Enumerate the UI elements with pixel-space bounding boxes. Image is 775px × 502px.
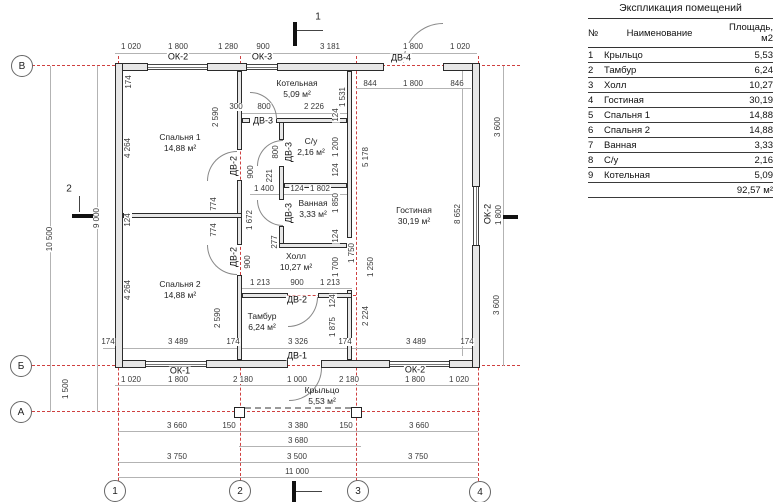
dimension-label: 1 800 xyxy=(404,376,426,384)
wall-segment xyxy=(347,71,352,238)
table-row: 3Холл10,27 xyxy=(588,78,773,93)
dimension-line xyxy=(118,477,478,478)
table-row: 2Тамбур6,24 xyxy=(588,63,773,78)
dimension-label: 4 264 xyxy=(124,137,132,159)
room-table-body: 1Крыльцо5,532Тамбур6,243Холл10,274Гостин… xyxy=(588,48,773,183)
dimension-label: 1 400 xyxy=(253,185,275,193)
wall-segment xyxy=(207,63,247,71)
room-label: Холл10,27 м² xyxy=(280,251,312,273)
dimension-label: 3 181 xyxy=(319,43,341,51)
dimension-label: 1 700 xyxy=(332,256,340,278)
dimension-label: 1 200 xyxy=(332,136,340,158)
dimension-label: 174 xyxy=(459,338,474,346)
dimension-label: 2 226 xyxy=(303,103,325,111)
wall-segment xyxy=(472,245,480,368)
dimension-label: 1 213 xyxy=(249,279,271,287)
dimension-label: 3 380 xyxy=(287,422,309,430)
dimension-label: 277 xyxy=(271,234,279,249)
table-row: 5Спальня 114,88 xyxy=(588,108,773,123)
room-label: Спальня 214,88 м² xyxy=(159,279,200,301)
dimension-line xyxy=(356,88,471,89)
wall-segment xyxy=(123,213,242,218)
table-row: 9Котельная5,09 xyxy=(588,168,773,183)
dimension-label: 844 xyxy=(362,80,377,88)
dimension-label: 1 000 xyxy=(286,376,308,384)
dimension-label: 1 020 xyxy=(448,376,470,384)
opening-label: ДВ-2 xyxy=(286,296,308,305)
opening-label: ДВ-3 xyxy=(285,202,294,224)
room-label: Тамбур6,24 м² xyxy=(248,311,277,333)
room-label: Спальня 114,88 м² xyxy=(159,132,200,154)
dimension-line xyxy=(239,446,361,447)
opening-label: ОК-2 xyxy=(404,366,426,375)
room-label: Котельная5,09 м² xyxy=(276,78,317,100)
dimension-label: 774 xyxy=(210,196,218,211)
axis-circle: 3 xyxy=(347,480,369,502)
wall-segment xyxy=(347,290,352,360)
dimension-label: 300 xyxy=(228,103,243,111)
dimension-label: 3 660 xyxy=(166,422,188,430)
room-schedule-table: № Наименование Площадь, м2 1Крыльцо5,532… xyxy=(588,18,773,198)
axis-line-a-row xyxy=(32,411,480,412)
floor-plan-sheet: ВБА1234 12 Спальня 114,88 м²Котельная5,0… xyxy=(0,0,775,502)
dimension-label: 9 000 xyxy=(93,207,101,229)
window-ok3-top xyxy=(247,64,277,70)
dimension-label: 1 672 xyxy=(246,209,254,231)
dimension-label: 1 800 xyxy=(495,204,503,226)
opening-label: ДВ-3 xyxy=(252,117,274,126)
dimension-label: 2 224 xyxy=(362,305,370,327)
dimension-label: 4 264 xyxy=(124,279,132,301)
dimension-label: 900 xyxy=(255,43,270,51)
dimension-label: 174 xyxy=(337,338,352,346)
section-label: 2 xyxy=(66,184,72,195)
dimension-label: 1 500 xyxy=(62,378,70,400)
axis-circle: В xyxy=(11,55,33,77)
dimension-label: 846 xyxy=(449,80,464,88)
dimension-label: 3 680 xyxy=(287,437,309,445)
porch-column xyxy=(351,407,362,418)
header-number: № xyxy=(588,19,604,48)
dimension-label: 800 xyxy=(272,144,280,159)
opening-label: ДВ-2 xyxy=(230,155,239,177)
axis-circle: 4 xyxy=(469,481,491,502)
door-arc-dv3-bath xyxy=(257,200,283,226)
opening-label: ОК-2 xyxy=(484,203,493,225)
dimension-label: 1 800 xyxy=(167,376,189,384)
room-label: Ванная3,33 м² xyxy=(298,198,327,220)
dimension-label: 124 xyxy=(289,185,304,193)
dimension-label: 124 xyxy=(124,212,132,227)
dimension-label: 3 500 xyxy=(286,453,308,461)
axis-circle: 1 xyxy=(104,480,126,502)
wall-segment xyxy=(242,118,250,123)
dimension-label: 174 xyxy=(100,338,115,346)
dimension-label: 1 020 xyxy=(120,376,142,384)
porch-column xyxy=(234,407,245,418)
dimension-label: 800 xyxy=(256,103,271,111)
dimension-label: 1 280 xyxy=(217,43,239,51)
dimension-label: 124 xyxy=(332,162,340,177)
opening-label: ОК-3 xyxy=(251,53,273,62)
axis-circle: Б xyxy=(10,355,32,377)
section-mark-1-top xyxy=(293,22,297,46)
table-row: 1Крыльцо5,53 xyxy=(588,48,773,63)
dimension-label: 1 020 xyxy=(120,43,142,51)
section-label: 1 xyxy=(315,12,321,23)
dimension-label: 124 xyxy=(332,107,340,122)
wall-segment xyxy=(279,243,347,248)
wall-segment xyxy=(321,360,390,368)
dimension-label: 3 489 xyxy=(405,338,427,346)
dimension-label: 900 xyxy=(289,279,304,287)
axis-circle: А xyxy=(10,401,32,423)
opening-label: ДВ-3 xyxy=(285,141,294,163)
header-name: Наименование xyxy=(604,19,715,48)
room-label: Крыльцо5,53 м² xyxy=(305,385,340,407)
room-label: С/у2,16 м² xyxy=(297,136,325,158)
dimension-label: 150 xyxy=(338,422,353,430)
opening-label: ОК-2 xyxy=(167,53,189,62)
dimension-label: 1 875 xyxy=(329,316,337,338)
wall-segment xyxy=(279,122,284,140)
dimension-label: 2 180 xyxy=(338,376,360,384)
dimension-label: 1 213 xyxy=(319,279,341,287)
dimension-line xyxy=(118,431,478,432)
dimension-label: 3 600 xyxy=(493,294,501,316)
section-mark-1-top-line xyxy=(297,30,323,31)
total-area: 92,57 м² xyxy=(588,183,773,198)
dimension-label: 2 180 xyxy=(232,376,254,384)
dimension-label: 174 xyxy=(125,74,133,89)
opening-label: ДВ-4 xyxy=(390,54,412,63)
table-row: 4Гостиная30,19 xyxy=(588,93,773,108)
section-mark-2-right xyxy=(502,215,518,219)
dimension-line xyxy=(462,71,463,356)
dimension-label: 11 000 xyxy=(284,468,310,476)
dimension-label: 124 xyxy=(329,293,337,308)
room-label: Гостиная30,19 м² xyxy=(396,205,432,227)
dimension-label: 2 590 xyxy=(212,106,220,128)
dimension-label: 774 xyxy=(210,222,218,237)
dimension-line xyxy=(118,462,478,463)
dimension-label: 1 850 xyxy=(332,192,340,214)
opening-label: ДВ-1 xyxy=(286,352,308,361)
dimension-label: 124 xyxy=(332,228,340,243)
dimension-label: 1 800 xyxy=(167,43,189,51)
dimension-label: 1 800 xyxy=(402,43,424,51)
section-mark-2-left-line xyxy=(79,196,80,212)
dimension-label: 3 489 xyxy=(167,338,189,346)
dimension-line xyxy=(97,66,98,412)
table-row: 6Спальня 214,88 xyxy=(588,123,773,138)
dimension-line xyxy=(103,348,472,349)
wall-segment xyxy=(237,275,242,360)
table-row: 7Ванная3,33 xyxy=(588,138,773,153)
dimension-label: 1 802 xyxy=(309,185,331,193)
room-schedule-title: Экспликация помещений xyxy=(588,2,773,14)
dimension-label: 8 652 xyxy=(454,203,462,225)
table-header-row: № Наименование Площадь, м2 xyxy=(588,19,773,48)
wall-segment xyxy=(472,63,480,187)
section-mark-1-bottom-line xyxy=(296,491,322,492)
dimension-label: 3 326 xyxy=(287,338,309,346)
dimension-label: 1 750 xyxy=(348,242,356,264)
dimension-label: 1 250 xyxy=(367,256,375,278)
dimension-label: 900 xyxy=(247,164,255,179)
dimension-label: 2 590 xyxy=(214,307,222,329)
porch-edge xyxy=(245,407,351,409)
dimension-label: 174 xyxy=(225,338,240,346)
dimension-line xyxy=(242,288,352,289)
wall-segment xyxy=(242,293,288,298)
dimension-label: 3 750 xyxy=(166,453,188,461)
wall-segment xyxy=(115,63,123,368)
dimension-label: 1 531 xyxy=(339,86,347,108)
dimension-label: 1 020 xyxy=(449,43,471,51)
dimension-label: 150 xyxy=(221,422,236,430)
opening-label: ДВ-2 xyxy=(230,246,239,268)
table-total-row: 92,57 м² xyxy=(588,183,773,198)
dimension-label: 3 750 xyxy=(407,453,429,461)
dimension-label: 10 500 xyxy=(46,226,54,252)
axis-circle: 2 xyxy=(229,480,251,502)
table-row: 8С/у2,16 xyxy=(588,153,773,168)
window-ok2-top xyxy=(148,64,207,70)
dimension-label: 3 660 xyxy=(408,422,430,430)
dimension-label: 5 178 xyxy=(362,146,370,168)
dimension-label: 1 800 xyxy=(402,80,424,88)
window-ok2-right xyxy=(473,187,479,245)
dimension-label: 900 xyxy=(244,254,252,269)
wall-segment xyxy=(277,63,384,71)
room-schedule: Экспликация помещений № Наименование Пло… xyxy=(588,2,773,198)
wall-segment xyxy=(206,360,288,368)
dimension-label: 3 600 xyxy=(494,116,502,138)
header-area: Площадь, м2 xyxy=(715,19,773,48)
